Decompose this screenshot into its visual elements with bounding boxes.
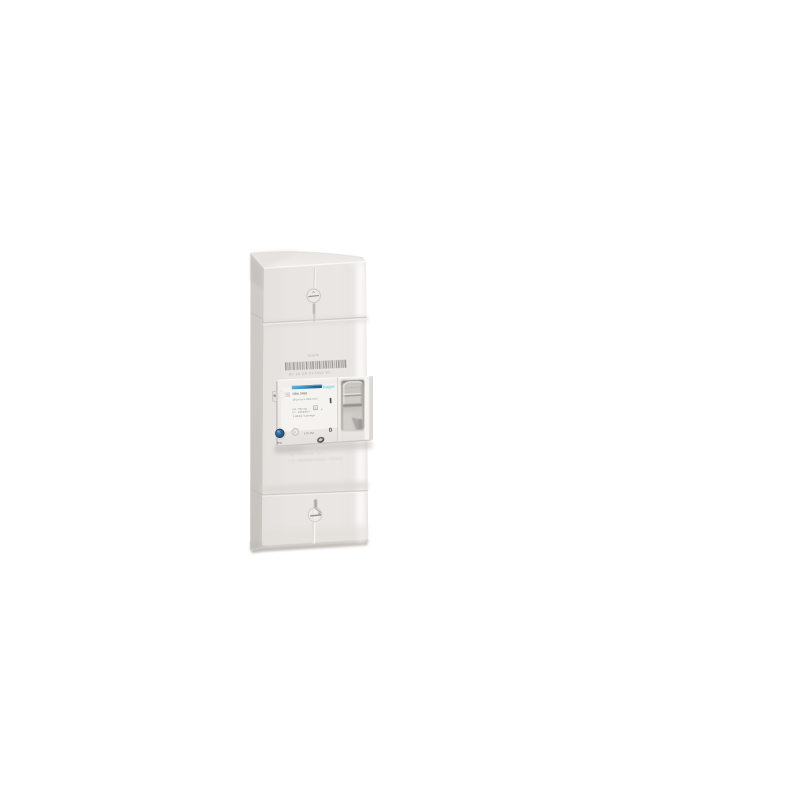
svg-text:FI: FI bbox=[294, 430, 297, 434]
svg-text:⏚: ⏚ bbox=[320, 407, 323, 411]
svg-text:HDA 245S: HDA 245S bbox=[292, 391, 307, 396]
svg-text:N: N bbox=[287, 393, 289, 397]
svg-text:hager: hager bbox=[323, 384, 336, 390]
svg-text:5x1378: 5x1378 bbox=[308, 353, 319, 358]
svg-text:Test: Test bbox=[277, 441, 282, 445]
svg-text:Δ 15-45A: Δ 15-45A bbox=[304, 432, 315, 435]
